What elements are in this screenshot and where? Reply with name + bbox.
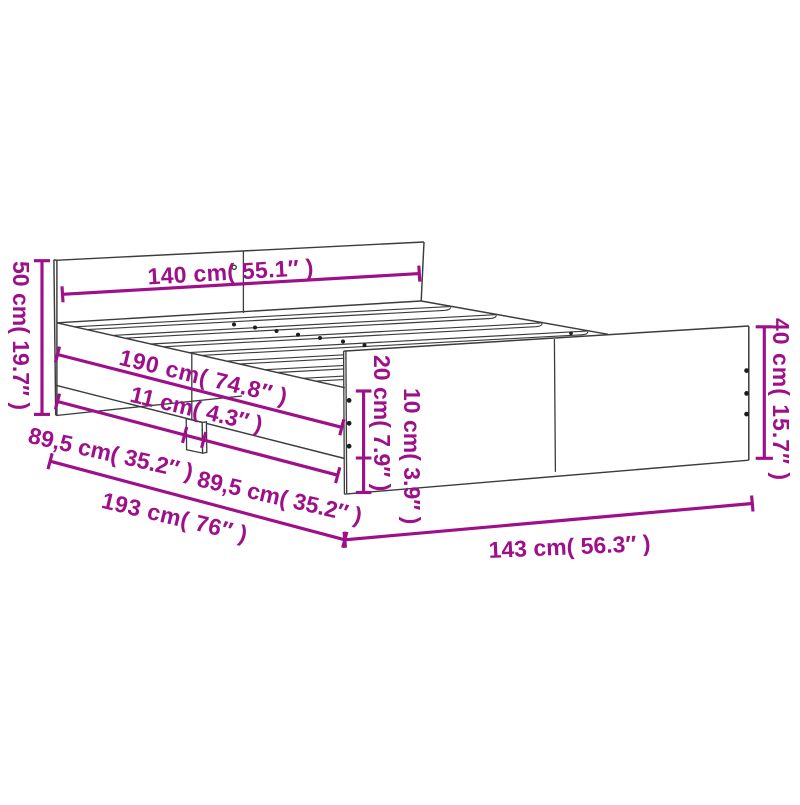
svg-text:10 cm( 3.9″ ): 10 cm( 3.9″ )	[399, 388, 425, 524]
svg-text:40 cm( 15.7″ ): 40 cm( 15.7″ )	[768, 318, 794, 481]
svg-text:50 cm( 19.7″ ): 50 cm( 19.7″ )	[8, 261, 34, 410]
svg-text:20 cm( 7.9″ ): 20 cm( 7.9″ )	[369, 355, 395, 491]
